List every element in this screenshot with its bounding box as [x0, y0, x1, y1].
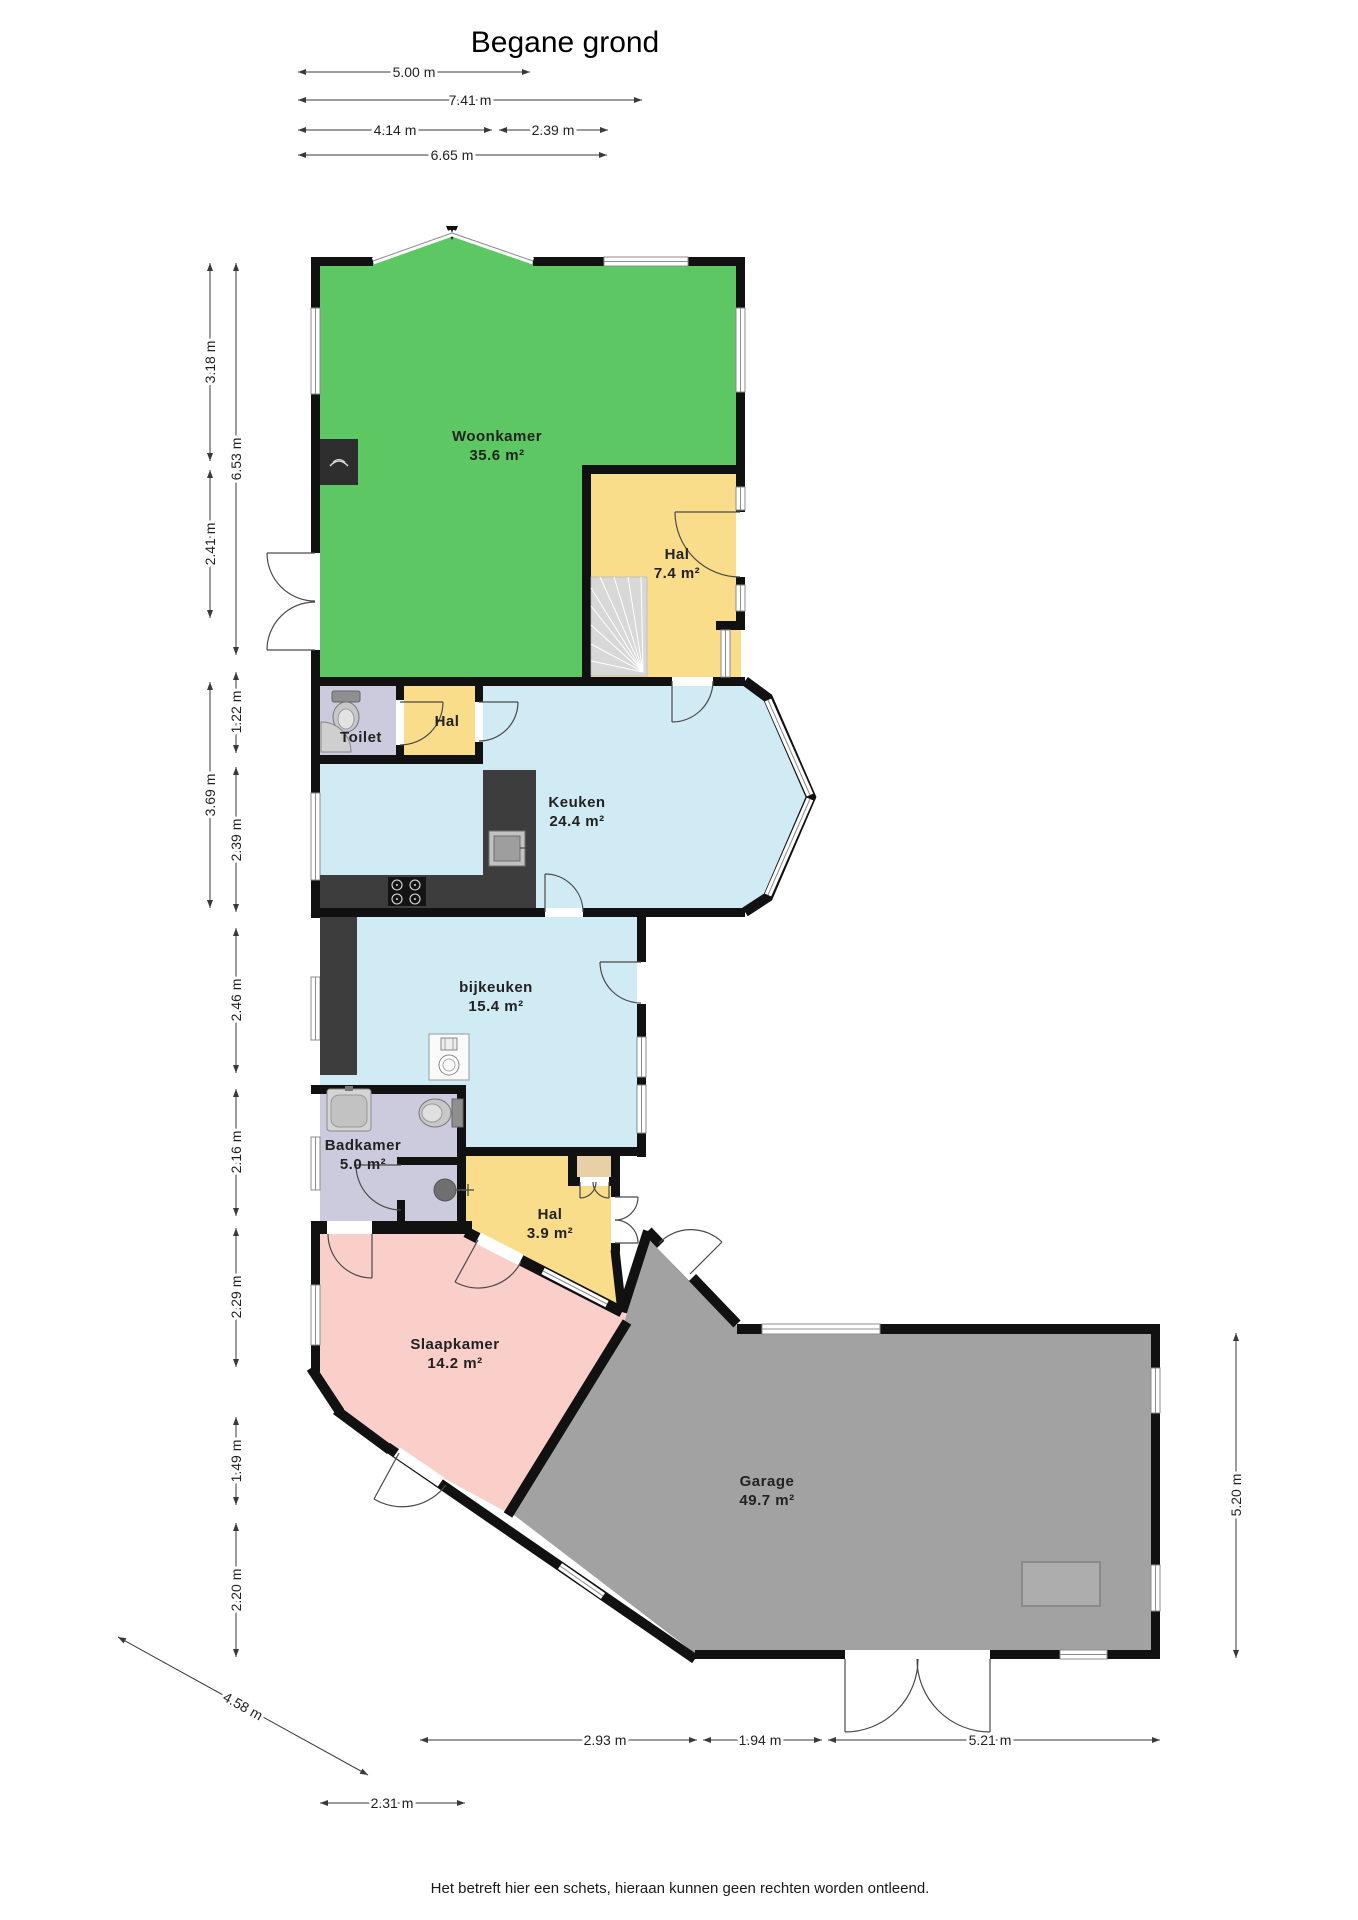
window-porch-side — [721, 630, 730, 677]
window-garage-right-a — [1151, 1368, 1160, 1413]
floorplan-page: Woonkamer 35.6 m² Hal 7.4 m² Toilet Hal … — [0, 0, 1358, 1920]
dim-left-j: 1.49 m — [228, 1440, 244, 1483]
label-hal-midden: Hal — [435, 713, 460, 730]
dim-top-b: 7.41 m — [449, 92, 492, 108]
window-garage-right-b — [1151, 1565, 1160, 1611]
window-slaapkamer-left — [311, 1285, 320, 1345]
label-garage: Garage — [740, 1473, 795, 1490]
fireplace — [320, 439, 358, 485]
dim-top-c: 4.14 m — [374, 122, 417, 138]
dim-left-b: 6.53 m — [228, 438, 244, 481]
washing-machine — [429, 1034, 469, 1080]
staircase — [591, 577, 647, 676]
window-woonkamer-top — [604, 257, 688, 266]
label-woonkamer-area: 35.6 m² — [469, 447, 524, 464]
label-hal-boven: Hal — [665, 546, 690, 563]
window-bijkeuken-left — [311, 977, 320, 1040]
dim-bottom-c: 5.21 m — [969, 1732, 1012, 1748]
window-keuken-left — [311, 793, 320, 880]
label-hal-onder-area: 3.9 m² — [527, 1225, 573, 1242]
window-bijkeuken-right-b — [637, 1085, 646, 1133]
dim-bottom-a: 2.93 m — [584, 1732, 627, 1748]
dim-diag-a: 4.58 m — [220, 1689, 265, 1724]
window-hal-right-a — [736, 487, 745, 510]
label-hal-boven-area: 7.4 m² — [654, 565, 700, 582]
disclaimer-text: Het betreft hier een schets, hieraan kun… — [431, 1880, 930, 1897]
kitchen-sink — [489, 831, 526, 866]
door-woonkamer-french — [267, 553, 320, 650]
dim-left-a: 3.18 m — [202, 341, 218, 384]
bathroom-sink — [327, 1086, 371, 1131]
dim-right-a: 5.20 m — [1228, 1474, 1244, 1517]
label-keuken-area: 24.4 m² — [549, 813, 604, 830]
dim-left-f: 2.39 m — [228, 819, 244, 862]
label-badkamer-area: 5.0 m² — [340, 1156, 386, 1173]
window-garage-top — [762, 1324, 880, 1334]
bathroom-toilet — [419, 1099, 463, 1127]
window-woonkamer-left — [311, 308, 320, 394]
dim-top-e: 6.65 m — [431, 147, 474, 163]
label-bijkeuken-area: 15.4 m² — [468, 998, 523, 1015]
dim-left-k: 2.20 m — [228, 1569, 244, 1612]
dim-bottom-b: 1.94 m — [739, 1732, 782, 1748]
dim-top-d: 2.39 m — [532, 122, 575, 138]
label-badkamer: Badkamer — [325, 1137, 402, 1154]
dim-left-i: 2.29 m — [228, 1276, 244, 1319]
stove — [388, 877, 426, 906]
garage-mat — [1022, 1562, 1100, 1606]
label-slaapkamer-area: 14.2 m² — [427, 1355, 482, 1372]
label-woonkamer: Woonkamer — [452, 428, 542, 445]
label-keuken: Keuken — [548, 794, 605, 811]
dim-left-e: 3.69 m — [202, 774, 218, 817]
window-hal-right-b — [736, 585, 745, 611]
dim-bottom-d: 2.31 m — [371, 1795, 414, 1811]
label-garage-area: 49.7 m² — [739, 1492, 794, 1509]
dim-left-h: 2.16 m — [228, 1131, 244, 1174]
dim-left-c: 2.41 m — [202, 523, 218, 566]
room-kast — [577, 1152, 611, 1181]
label-slaapkamer: Slaapkamer — [410, 1336, 499, 1353]
dim-left-d: 1.22 m — [228, 691, 244, 734]
door-garage-doors — [845, 1650, 990, 1732]
floorplan-canvas: Woonkamer 35.6 m² Hal 7.4 m² Toilet Hal … — [0, 0, 1358, 1920]
window-bijkeuken-right-a — [637, 1037, 646, 1077]
window-woonkamer-right — [736, 308, 745, 392]
label-toilet: Toilet — [340, 729, 382, 746]
window-garage-bottom — [1060, 1650, 1107, 1659]
dim-top-a: 5.00 m — [393, 64, 436, 80]
rooms — [315, 232, 1156, 1655]
label-hal-onder: Hal — [538, 1206, 563, 1223]
dim-left-g: 2.46 m — [228, 979, 244, 1022]
label-bijkeuken: bijkeuken — [459, 979, 533, 996]
page-title: Begane grond — [471, 26, 660, 59]
door-hal-porch-double — [611, 1197, 638, 1243]
window-badkamer-left — [311, 1137, 320, 1190]
